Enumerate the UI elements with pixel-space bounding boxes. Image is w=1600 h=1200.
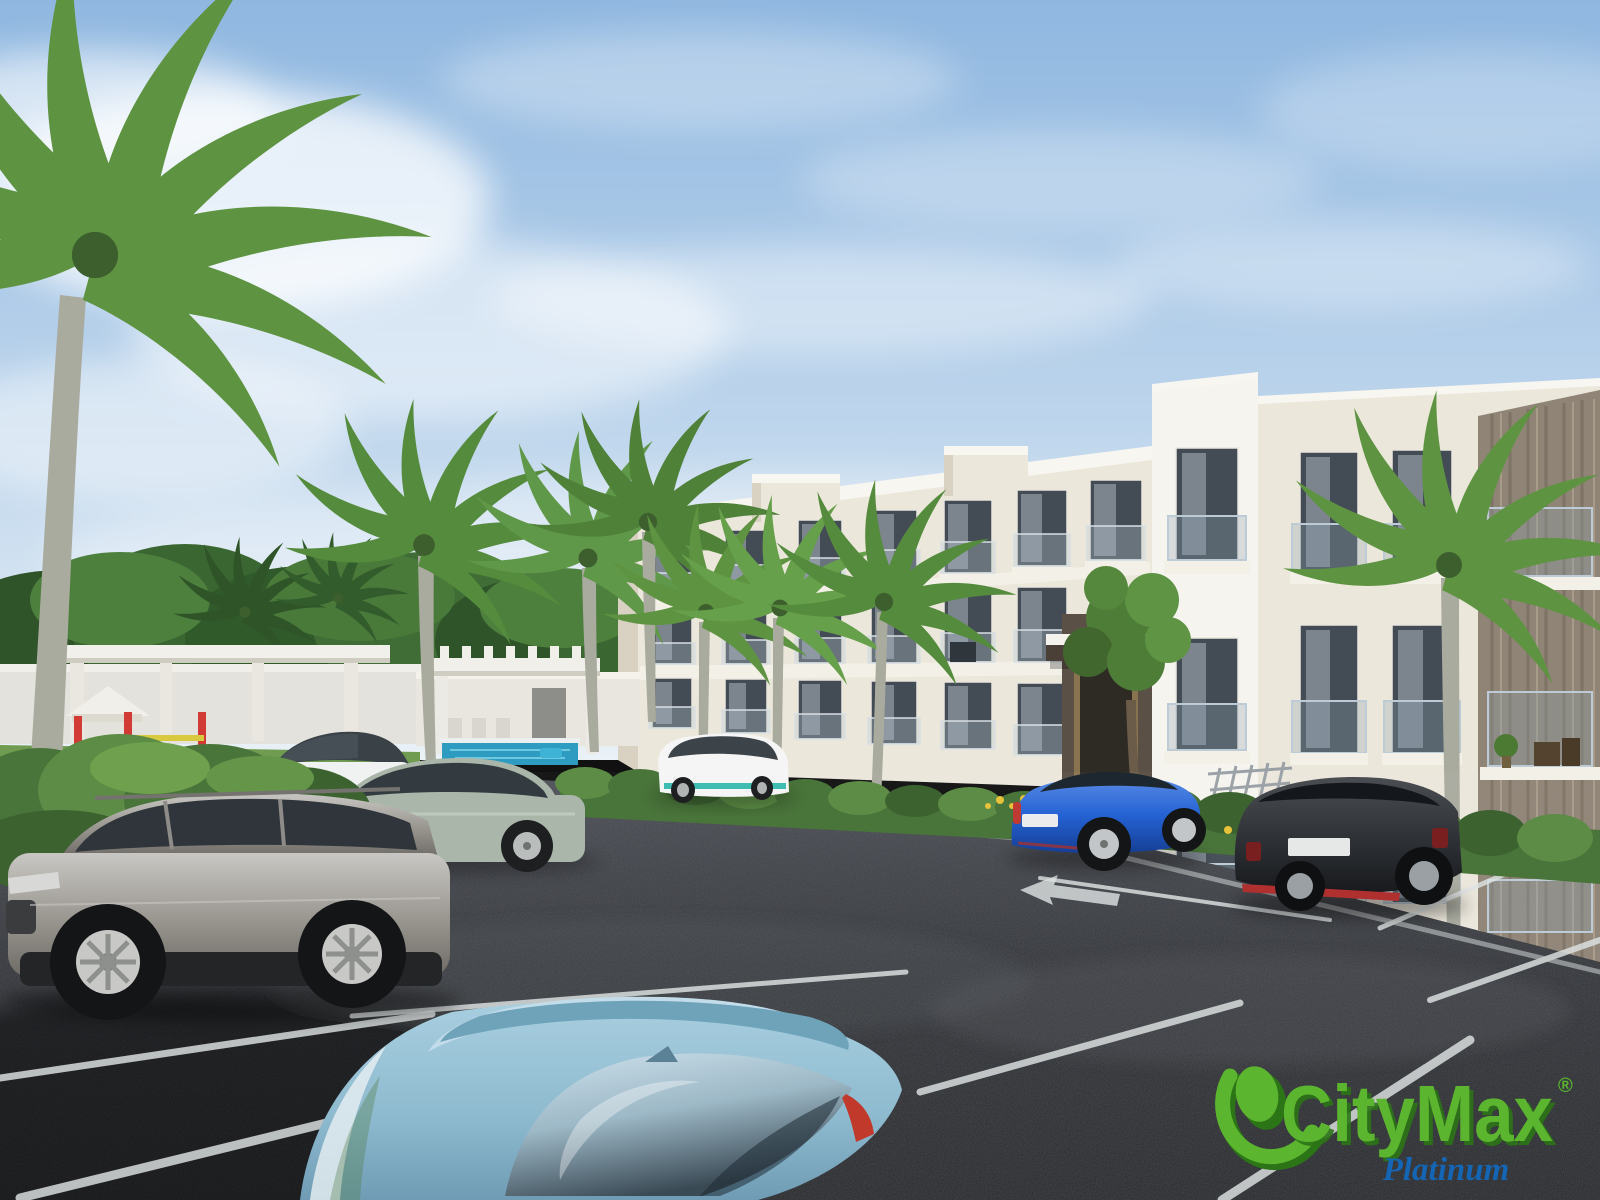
car-white-hatchback [652,733,796,805]
balcony-chair [1534,742,1560,766]
scene-svg: CityMax CityMax ® Platinum [0,0,1600,1200]
license-plate [1022,814,1058,827]
brand-text: CityMax [1281,1069,1553,1158]
taillight [1013,802,1021,824]
license-plate [1288,838,1350,856]
car-blue-sedan [1007,772,1206,871]
registered-mark: ® [1558,1075,1573,1097]
property-rendering: CityMax CityMax ® Platinum [0,0,1600,1200]
car-dark-wagon [1232,777,1468,918]
balcony-chair [1562,738,1580,766]
edition-text: Platinum [1382,1152,1510,1188]
pool-float [540,748,562,758]
taillight [1432,828,1448,848]
balcony-plant [1494,734,1518,758]
taillight [1246,842,1261,861]
